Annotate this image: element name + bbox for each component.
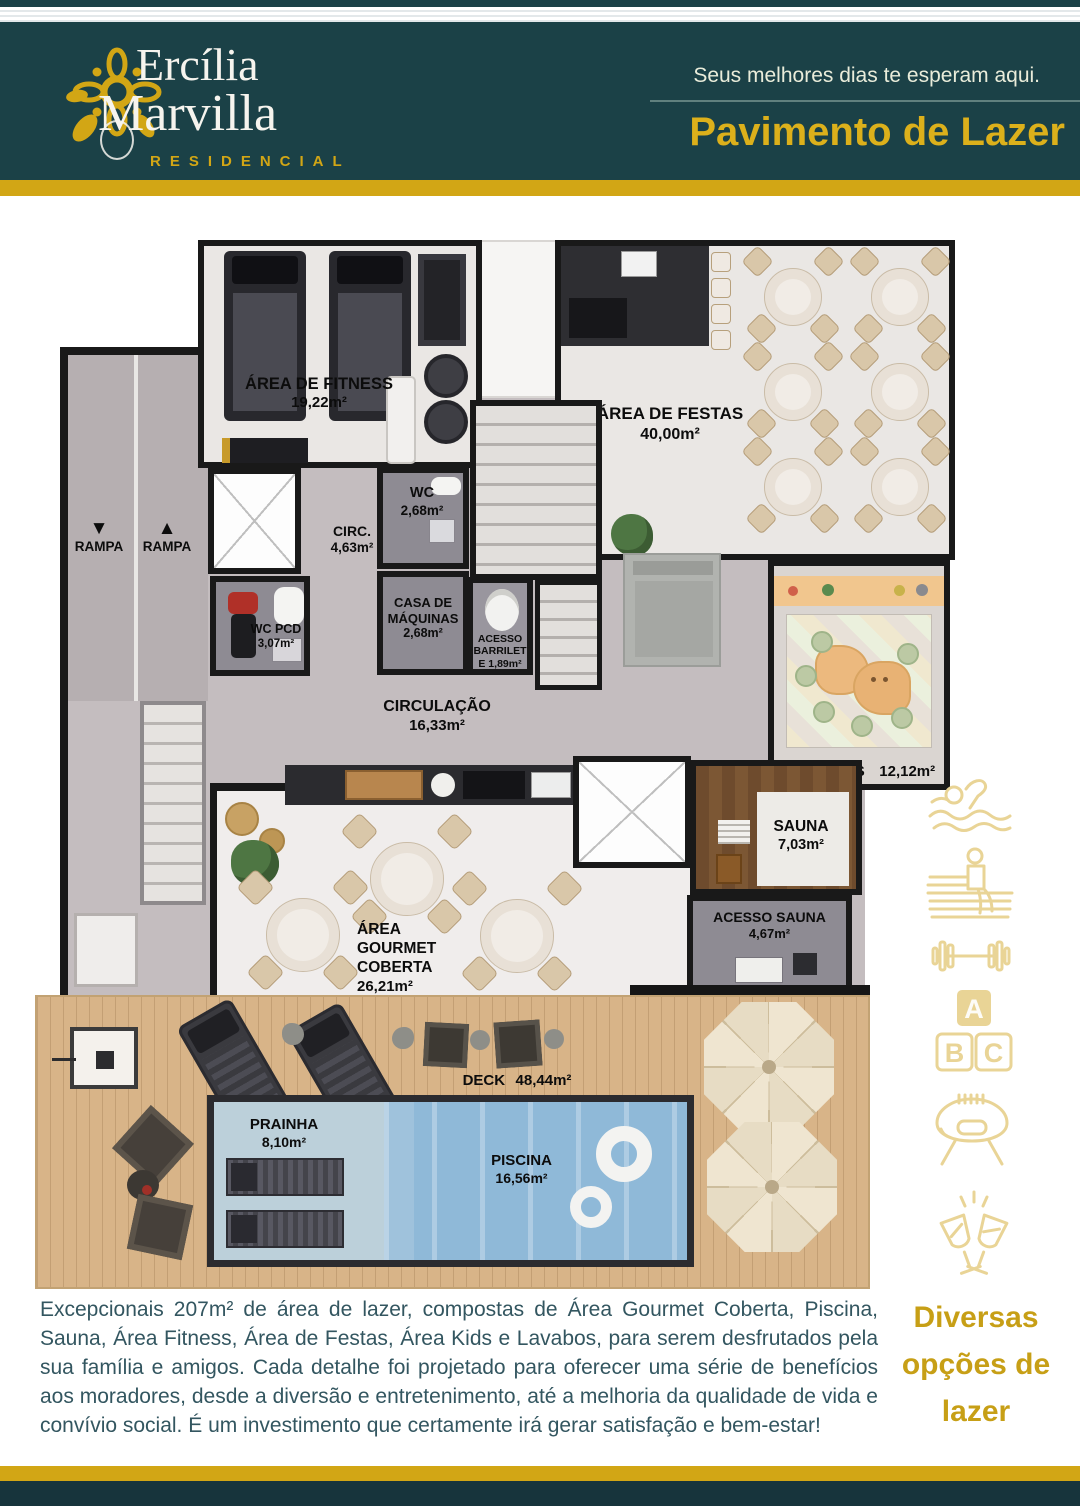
toy-face-dot xyxy=(871,677,876,682)
small-room xyxy=(74,913,138,987)
deck-label: DECK 48,44m² xyxy=(427,1071,607,1091)
room-acesso-sauna: ACESSO SAUNA 4,67m² xyxy=(687,895,852,992)
side-stone xyxy=(282,1023,304,1045)
brand-flourish xyxy=(100,120,134,160)
cooktop xyxy=(463,771,525,799)
header-gold-stripe xyxy=(0,180,1080,196)
header-divider xyxy=(650,100,1080,102)
plant xyxy=(611,514,653,556)
decor-dot xyxy=(142,1185,152,1195)
gym-rack xyxy=(418,254,466,346)
dining-table xyxy=(743,437,843,537)
stairs-center xyxy=(470,400,602,580)
toast-glasses-icon xyxy=(930,1188,1018,1284)
room-label-circ: CIRC. 4,63m² xyxy=(317,523,387,557)
bar-stool xyxy=(711,304,731,324)
weight-shelf xyxy=(222,438,308,463)
pool: PRAINHA 8,10m² PISCINA 16,56m² xyxy=(207,1095,694,1267)
leaflet-page: Ercília Marvilla RESIDENCIAL Seus melhor… xyxy=(0,0,1080,1506)
room-kids: ÁREA KIDS 12,12m² xyxy=(768,560,950,790)
pool-float xyxy=(596,1126,652,1182)
bbq-grill-icon xyxy=(928,1092,1016,1170)
kids-stool xyxy=(897,643,919,665)
svg-text:A: A xyxy=(964,994,984,1024)
kids-shelf xyxy=(774,576,944,606)
kids-play-mat xyxy=(786,614,932,748)
submerged-lounger xyxy=(226,1158,344,1196)
cutting-board xyxy=(345,770,423,800)
plate xyxy=(431,773,455,797)
swimmer-icon xyxy=(928,772,1018,834)
ramp-up-label: ▲ RAMPA xyxy=(134,519,200,555)
pool-float xyxy=(570,1186,612,1228)
stairs-left xyxy=(140,701,206,905)
room-casa-maquinas: CASA DE MÁQUINAS 2,68m² xyxy=(377,571,469,675)
kids-stool xyxy=(795,665,817,687)
elevator-shaft xyxy=(208,468,301,574)
room-wc: WC 2,68m² xyxy=(377,467,469,569)
room-acesso-barrilete: ACESSO BARRILET E 1,89m² xyxy=(467,577,533,675)
sink xyxy=(531,772,571,798)
room-label-gourmet: ÁREA GOURMET COBERTA 26,21m² xyxy=(357,920,487,996)
umbrella xyxy=(704,1002,834,1132)
room-sauna: SAUNA 7,03m² xyxy=(690,760,862,895)
side-stone xyxy=(544,1029,564,1049)
elevator-shaft xyxy=(573,756,691,868)
header: Ercília Marvilla RESIDENCIAL Seus melhor… xyxy=(0,0,1080,196)
header-top-stripe xyxy=(0,7,1080,22)
toilet xyxy=(485,589,519,631)
kids-stool xyxy=(891,707,913,729)
sauna-bench-icon xyxy=(926,845,1016,923)
stairs-center-lower xyxy=(535,580,602,690)
arrow-up-icon: ▲ xyxy=(134,519,200,539)
sauna-panel xyxy=(716,854,742,884)
mat xyxy=(793,953,817,975)
room-wc-pcd: WC PCD 3,07m² xyxy=(210,576,310,676)
description-paragraph: Excepcionais 207m² de área de lazer, com… xyxy=(40,1295,878,1440)
room-label-wc: WC 2,68m² xyxy=(383,485,461,519)
room-festas: ÁREA DE FESTAS 40,00m² xyxy=(555,240,955,560)
toilet xyxy=(274,587,304,625)
floor-plan: ▼ RAMPA ▲ RAMPA ÁREA DE FITNESS 19,22m² xyxy=(30,235,955,1291)
service-shaft xyxy=(623,553,721,667)
stair-void xyxy=(467,240,567,398)
flag-pole xyxy=(52,1058,76,1061)
flag xyxy=(96,1051,114,1069)
page-title: Pavimento de Lazer xyxy=(540,110,1065,155)
dining-table xyxy=(743,342,843,442)
wash-basin xyxy=(429,519,455,543)
toy xyxy=(822,584,834,596)
tagline: Seus melhores dias te esperam aqui. xyxy=(540,64,1040,88)
bar-stool xyxy=(711,330,731,350)
wall xyxy=(60,347,210,355)
prainha-label: PRAINHA 8,10m² xyxy=(224,1116,344,1151)
room-label-casa-maquinas: CASA DE MÁQUINAS 2,68m² xyxy=(383,595,463,641)
room-label-circulacao: CIRCULAÇÃO 16,33m² xyxy=(364,697,510,735)
arrow-down-icon: ▼ xyxy=(66,519,132,539)
bar-stool xyxy=(711,252,731,272)
wall xyxy=(210,783,290,791)
svg-text:C: C xyxy=(984,1038,1004,1068)
service-shaft-body xyxy=(635,581,713,657)
side-stone xyxy=(392,1027,414,1049)
cooktop xyxy=(569,298,627,338)
room-fitness: ÁREA DE FITNESS 19,22m² xyxy=(198,240,482,468)
wall xyxy=(60,353,68,999)
room-label-festas: ÁREA DE FESTAS 40,00m² xyxy=(585,404,755,444)
toy xyxy=(788,586,798,596)
footer-teal-stripe xyxy=(0,1481,1080,1506)
dining-table xyxy=(743,247,843,347)
basket xyxy=(225,802,259,836)
gourmet-counter xyxy=(285,765,575,805)
room-label-sauna: SAUNA 7,03m² xyxy=(746,818,856,855)
sink xyxy=(621,251,657,277)
room-label-acesso-sauna: ACESSO SAUNA 4,67m² xyxy=(693,909,846,942)
deck-table xyxy=(493,1019,542,1068)
bar-stool xyxy=(711,278,731,298)
piscina-label: PISCINA 16,56m² xyxy=(454,1152,589,1187)
footer-gold-stripe xyxy=(0,1466,1080,1481)
svg-text:B: B xyxy=(945,1038,965,1068)
kids-stool xyxy=(851,715,873,737)
room-label-wc-pcd: WC PCD 3,07m² xyxy=(244,622,308,651)
toy-face-dot xyxy=(883,677,888,682)
service-shaft-top xyxy=(633,561,713,575)
abc-blocks-icon: A B C xyxy=(930,988,1018,1082)
deck-utility-box xyxy=(70,1027,138,1089)
dining-table xyxy=(850,342,950,442)
wheelchair-user xyxy=(228,592,258,614)
deck-table xyxy=(423,1022,469,1068)
bench xyxy=(735,957,783,983)
room-label-fitness: ÁREA DE FITNESS 19,22m² xyxy=(204,374,434,412)
deck: DECK 48,44m² PRAINHA 8,10m² PISCINA 16,5… xyxy=(35,995,870,1289)
highlight-text: Diversas opções de lazer xyxy=(876,1294,1076,1435)
wall xyxy=(630,985,870,995)
brand-subtitle: RESIDENCIAL xyxy=(150,153,351,170)
room-label-acesso-barrilete: ACESSO BARRILET E 1,89m² xyxy=(473,633,527,670)
kids-stool xyxy=(811,631,833,653)
lounge-chair xyxy=(127,1194,193,1260)
dining-table xyxy=(850,437,950,537)
dining-table xyxy=(850,247,950,347)
kids-stool xyxy=(813,701,835,723)
dumbbell-icon xyxy=(926,932,1016,980)
umbrella xyxy=(707,1122,837,1252)
ramp-down-label: ▼ RAMPA xyxy=(66,519,132,555)
toy xyxy=(916,584,928,596)
side-stone xyxy=(470,1030,490,1050)
toy xyxy=(894,585,905,596)
submerged-lounger xyxy=(226,1210,344,1248)
